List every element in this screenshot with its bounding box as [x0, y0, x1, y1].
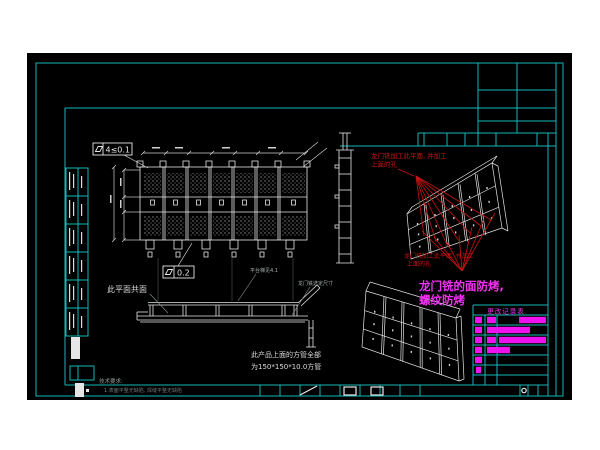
red-note-bottom-line1: 龙门铣加工此平面, 并加工 [404, 252, 474, 260]
gantry-dim-label: 龙门铣选定尺寸 [298, 280, 333, 287]
magenta-note-line1: 龙门铣的面防烤, [418, 279, 504, 293]
revision-table-header: 更改记录表 [487, 307, 525, 316]
tech-req-title: 技术要求: [99, 377, 123, 385]
magenta-note-line2: 螺纹防烤 [419, 293, 465, 307]
red-note-top-line2: 上面的孔 [371, 160, 398, 169]
filled-cell [71, 337, 80, 359]
platform-label: 平台梯见4.1 [250, 267, 278, 274]
cad-preview-image[interactable]: 4≤0.1 0.2 此平面共面 平台梯见4.1 龙门铣选定尺寸 龙门铣加工此平面… [0, 0, 600, 450]
tech-req-item: 1.表面平整无缺陷, 焊缝平整无缺陷 [104, 387, 182, 394]
filled-cell [75, 383, 84, 397]
dot-mark [86, 389, 89, 392]
red-note-bottom-line2: 上面的孔 [407, 260, 431, 268]
cad-sheet: 4≤0.1 0.2 此平面共面 平台梯见4.1 龙门铣选定尺寸 龙门铣加工此平面… [0, 0, 600, 450]
red-note-top-line1: 龙门铣加工此平面, 并加工 [371, 151, 447, 160]
tube-note-line1: 此产品上面的方管全部 [251, 350, 321, 359]
gdt-value-top: 4≤0.1 [106, 146, 131, 155]
tube-note-line2: 为150*150*10.0方管 [251, 362, 321, 371]
coplanar-label: 此平面共面 [107, 284, 147, 294]
gdt-value-mid: 0.2 [177, 269, 190, 278]
